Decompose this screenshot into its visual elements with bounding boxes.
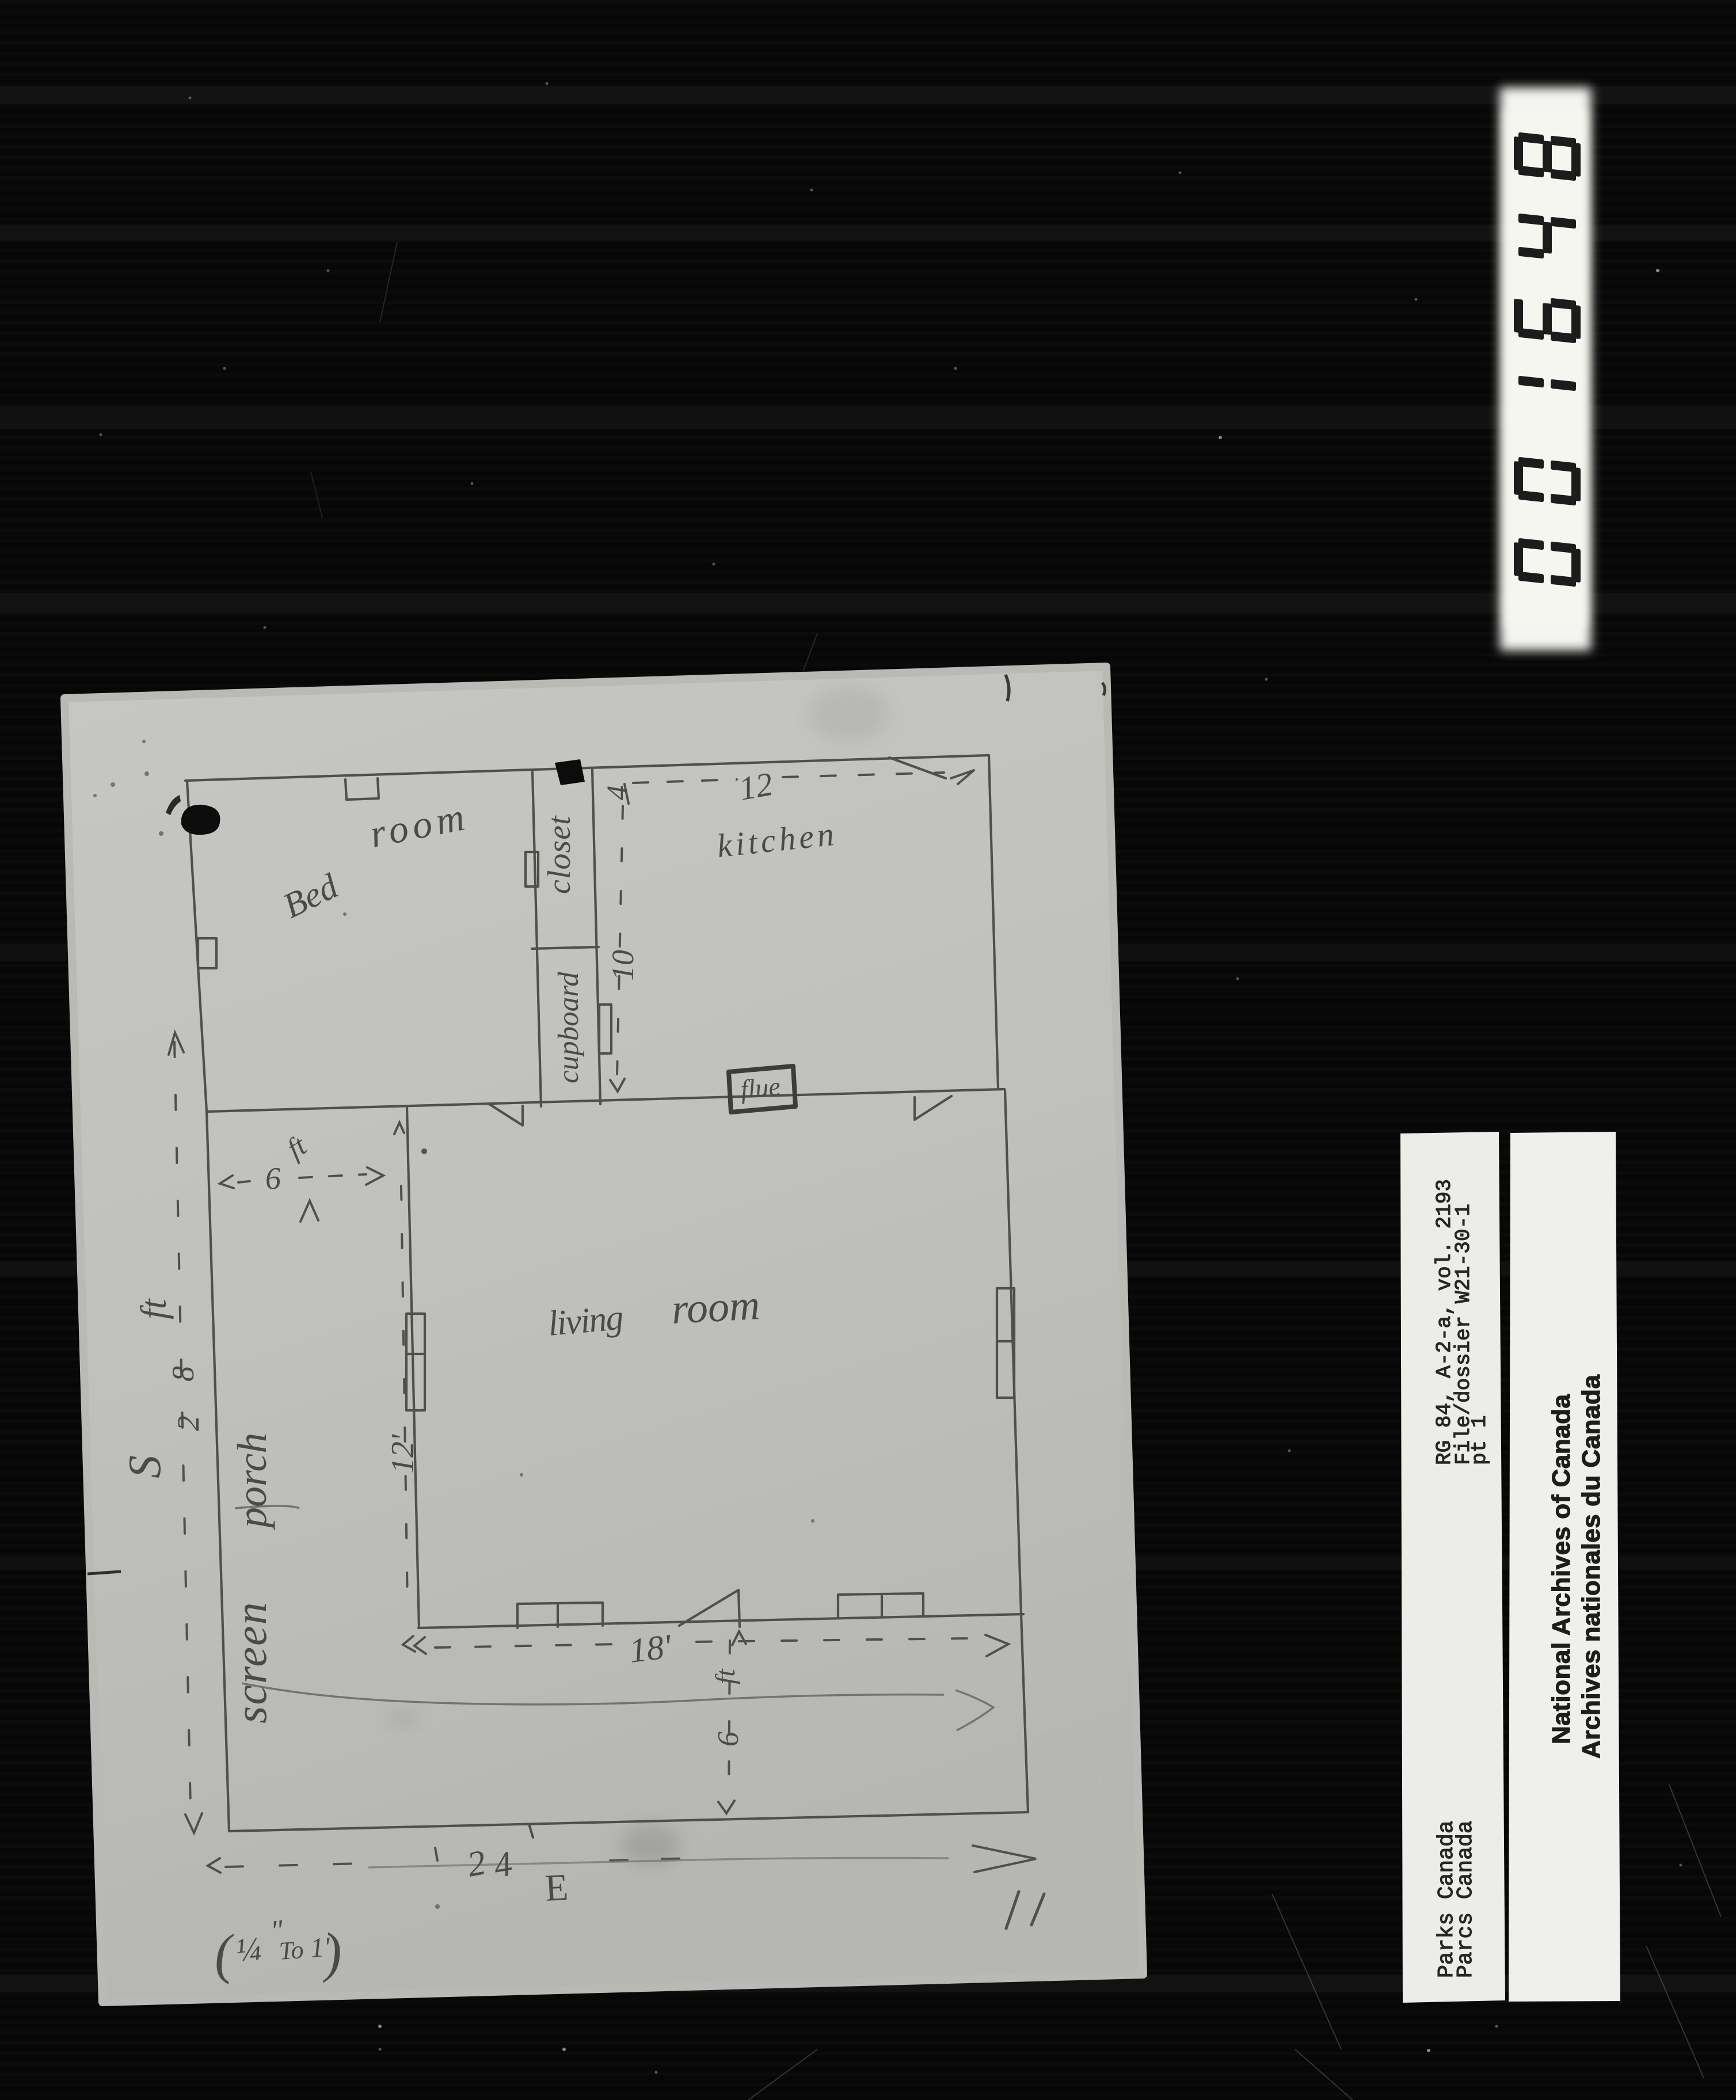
svg-text:E: E — [544, 1866, 569, 1909]
svg-text:living: living — [546, 1298, 625, 1344]
svg-text:screen: screen — [226, 1601, 276, 1724]
svg-text:¼: ¼ — [234, 1930, 263, 1969]
svg-text:cupboard: cupboard — [553, 972, 585, 1083]
svg-text:porch: porch — [229, 1433, 275, 1531]
svg-text:4: 4 — [601, 785, 634, 800]
svg-text:National Archives of Canada: National Archives of Canada — [1547, 1394, 1575, 1744]
svg-text:room: room — [671, 1281, 762, 1333]
svg-text:12': 12' — [385, 1434, 421, 1474]
svg-text:closet: closet — [542, 815, 577, 894]
svg-text:S: S — [120, 1455, 170, 1478]
svg-text:To: To — [278, 1935, 304, 1965]
svg-text:6: 6 — [264, 1161, 282, 1196]
svg-text:Parcs Canada: Parcs Canada — [1453, 1820, 1478, 1978]
svg-text:Archives nationales du Canada: Archives nationales du Canada — [1577, 1375, 1605, 1759]
svg-text:flue: flue — [739, 1071, 781, 1104]
svg-text:pt 1: pt 1 — [1468, 1416, 1491, 1465]
svg-text:6: 6 — [712, 1732, 745, 1747]
svg-text:ft: ft — [133, 1298, 174, 1319]
svg-text:ft: ft — [710, 1668, 741, 1684]
svg-text:18': 18' — [627, 1627, 674, 1670]
svg-text:8: 8 — [166, 1366, 200, 1382]
svg-text:10: 10 — [606, 950, 640, 981]
svg-text:2: 2 — [171, 1416, 205, 1431]
svg-text:12: 12 — [736, 765, 775, 808]
